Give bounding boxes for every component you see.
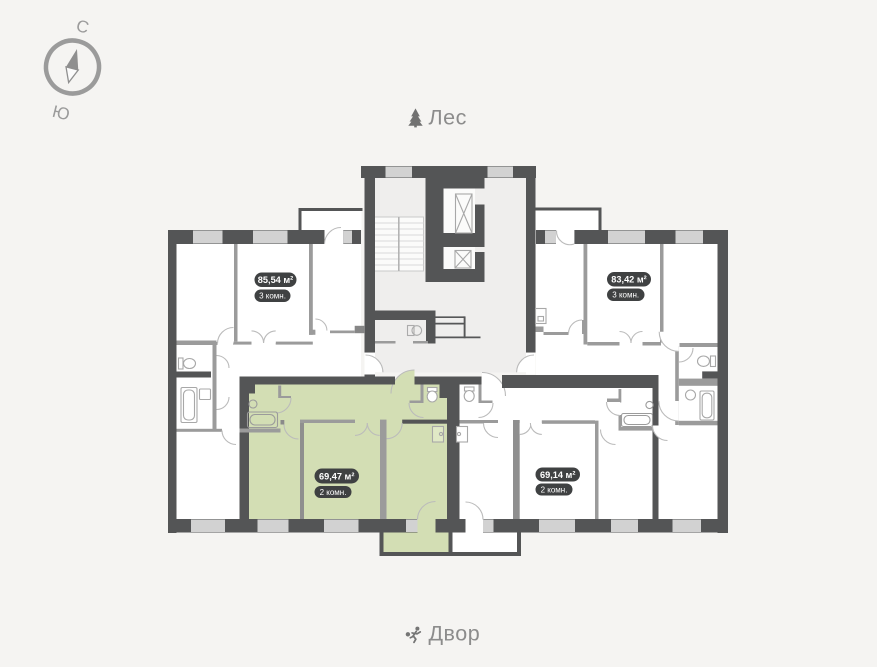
svg-text:2 комн.: 2 комн.: [541, 486, 568, 495]
svg-text:3 комн.: 3 комн.: [612, 291, 639, 300]
svg-text:2 комн.: 2 комн.: [320, 488, 347, 497]
svg-text:69,14 м²: 69,14 м²: [540, 470, 575, 480]
svg-text:Лес: Лес: [429, 106, 467, 130]
svg-text:85,54 м²: 85,54 м²: [258, 275, 293, 285]
svg-text:69,47 м²: 69,47 м²: [319, 471, 354, 481]
svg-text:Двор: Двор: [429, 622, 481, 646]
svg-text:3 комн.: 3 комн.: [259, 292, 286, 301]
svg-text:83,42 м²: 83,42 м²: [611, 275, 646, 285]
